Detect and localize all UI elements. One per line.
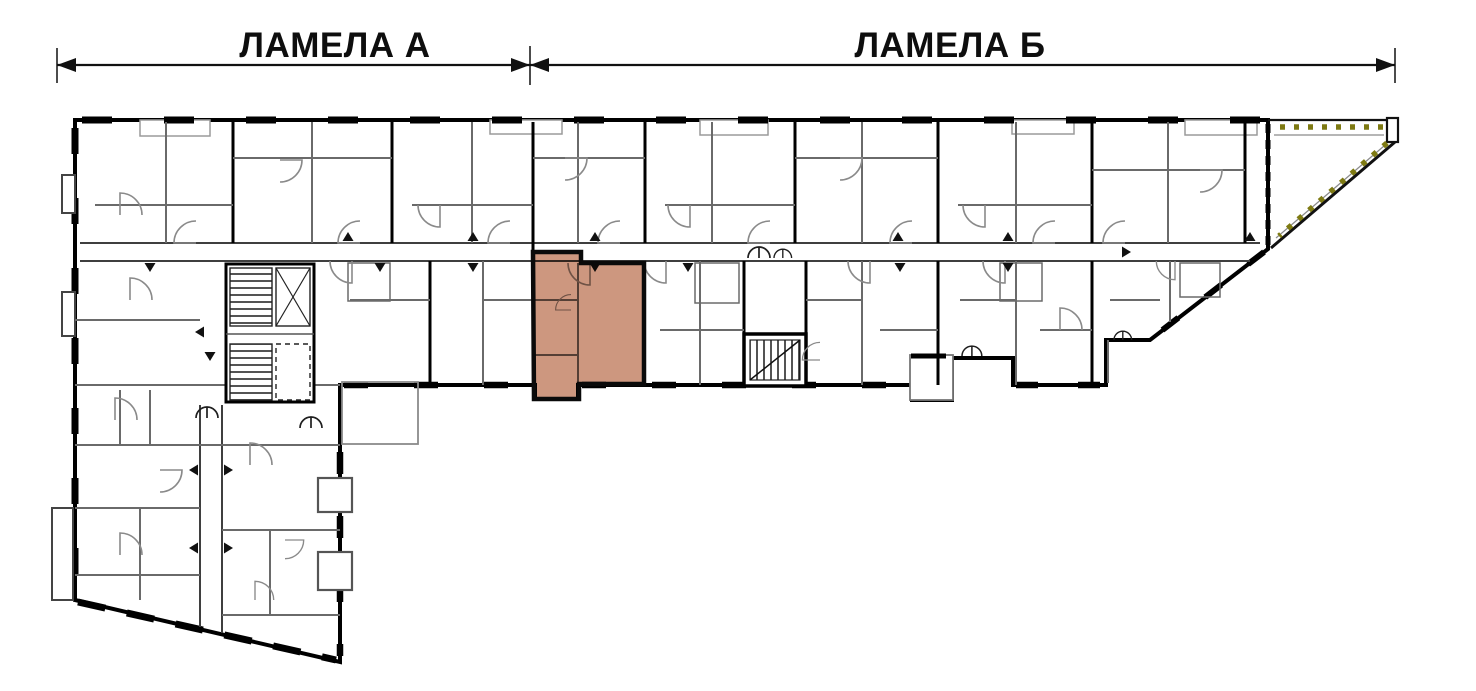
terrace-corner — [1387, 118, 1398, 142]
selected-apartment-highlight[interactable] — [533, 252, 644, 399]
highlighted-apartment[interactable] — [533, 252, 644, 399]
stair-flight — [230, 268, 272, 326]
terrace — [1268, 118, 1398, 248]
shaft — [276, 344, 310, 400]
lamela-b-label: ЛАМЕЛА Б — [854, 26, 1045, 65]
stair-flight — [230, 344, 272, 400]
floor-plan-canvas: ЛАМЕЛА А ЛАМЕЛА Б — [0, 0, 1476, 691]
stair-core-b — [744, 334, 806, 386]
stair-core-a — [226, 264, 314, 402]
floor-plan-page: ЛАМЕЛА А ЛАМЕЛА Б — [0, 0, 1476, 691]
dimension-bar: ЛАМЕЛА А ЛАМЕЛА Б — [57, 26, 1395, 85]
lamela-a-label: ЛАМЕЛА А — [239, 26, 430, 65]
